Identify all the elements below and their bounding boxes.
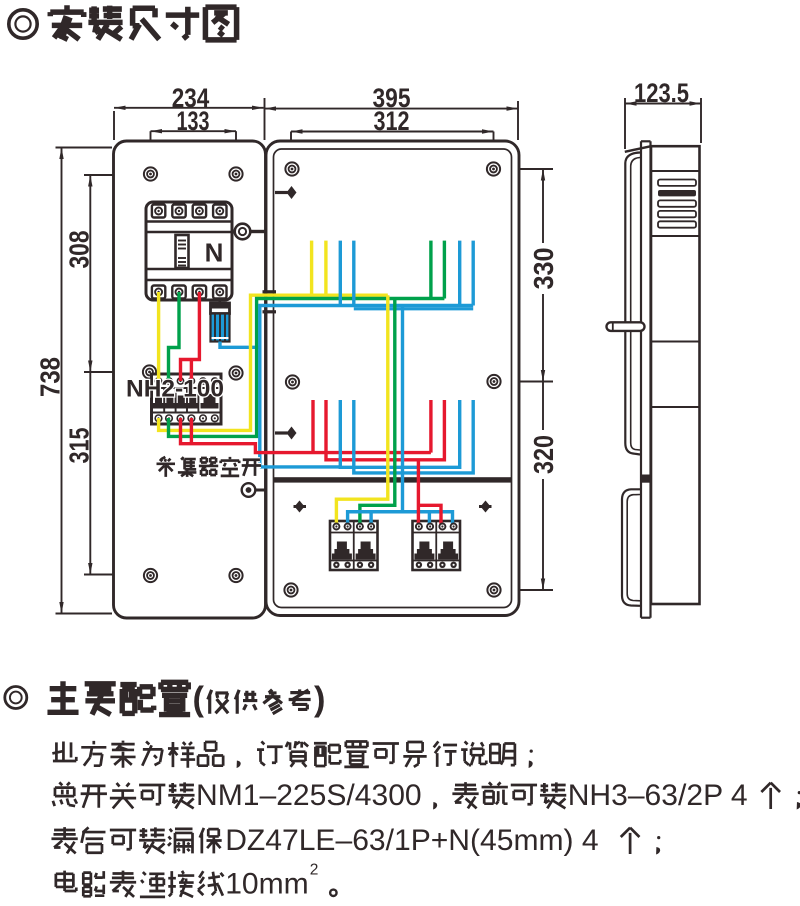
svg-text:10mm: 10mm <box>225 867 309 900</box>
svg-text:320: 320 <box>528 435 559 474</box>
svg-text:): ) <box>314 681 325 719</box>
svg-text:NH3–63/2P 4: NH3–63/2P 4 <box>568 779 748 812</box>
svg-text:(: ( <box>193 681 205 719</box>
svg-text:N: N <box>205 238 224 268</box>
svg-text:DZ47LE–63/1P+N(45mm) 4: DZ47LE–63/1P+N(45mm) 4 <box>225 824 598 857</box>
svg-text:2: 2 <box>310 862 319 879</box>
svg-text:330: 330 <box>528 248 559 290</box>
svg-text:NM1–225S/4300: NM1–225S/4300 <box>196 779 422 812</box>
svg-text:NH2-100: NH2-100 <box>126 376 224 403</box>
